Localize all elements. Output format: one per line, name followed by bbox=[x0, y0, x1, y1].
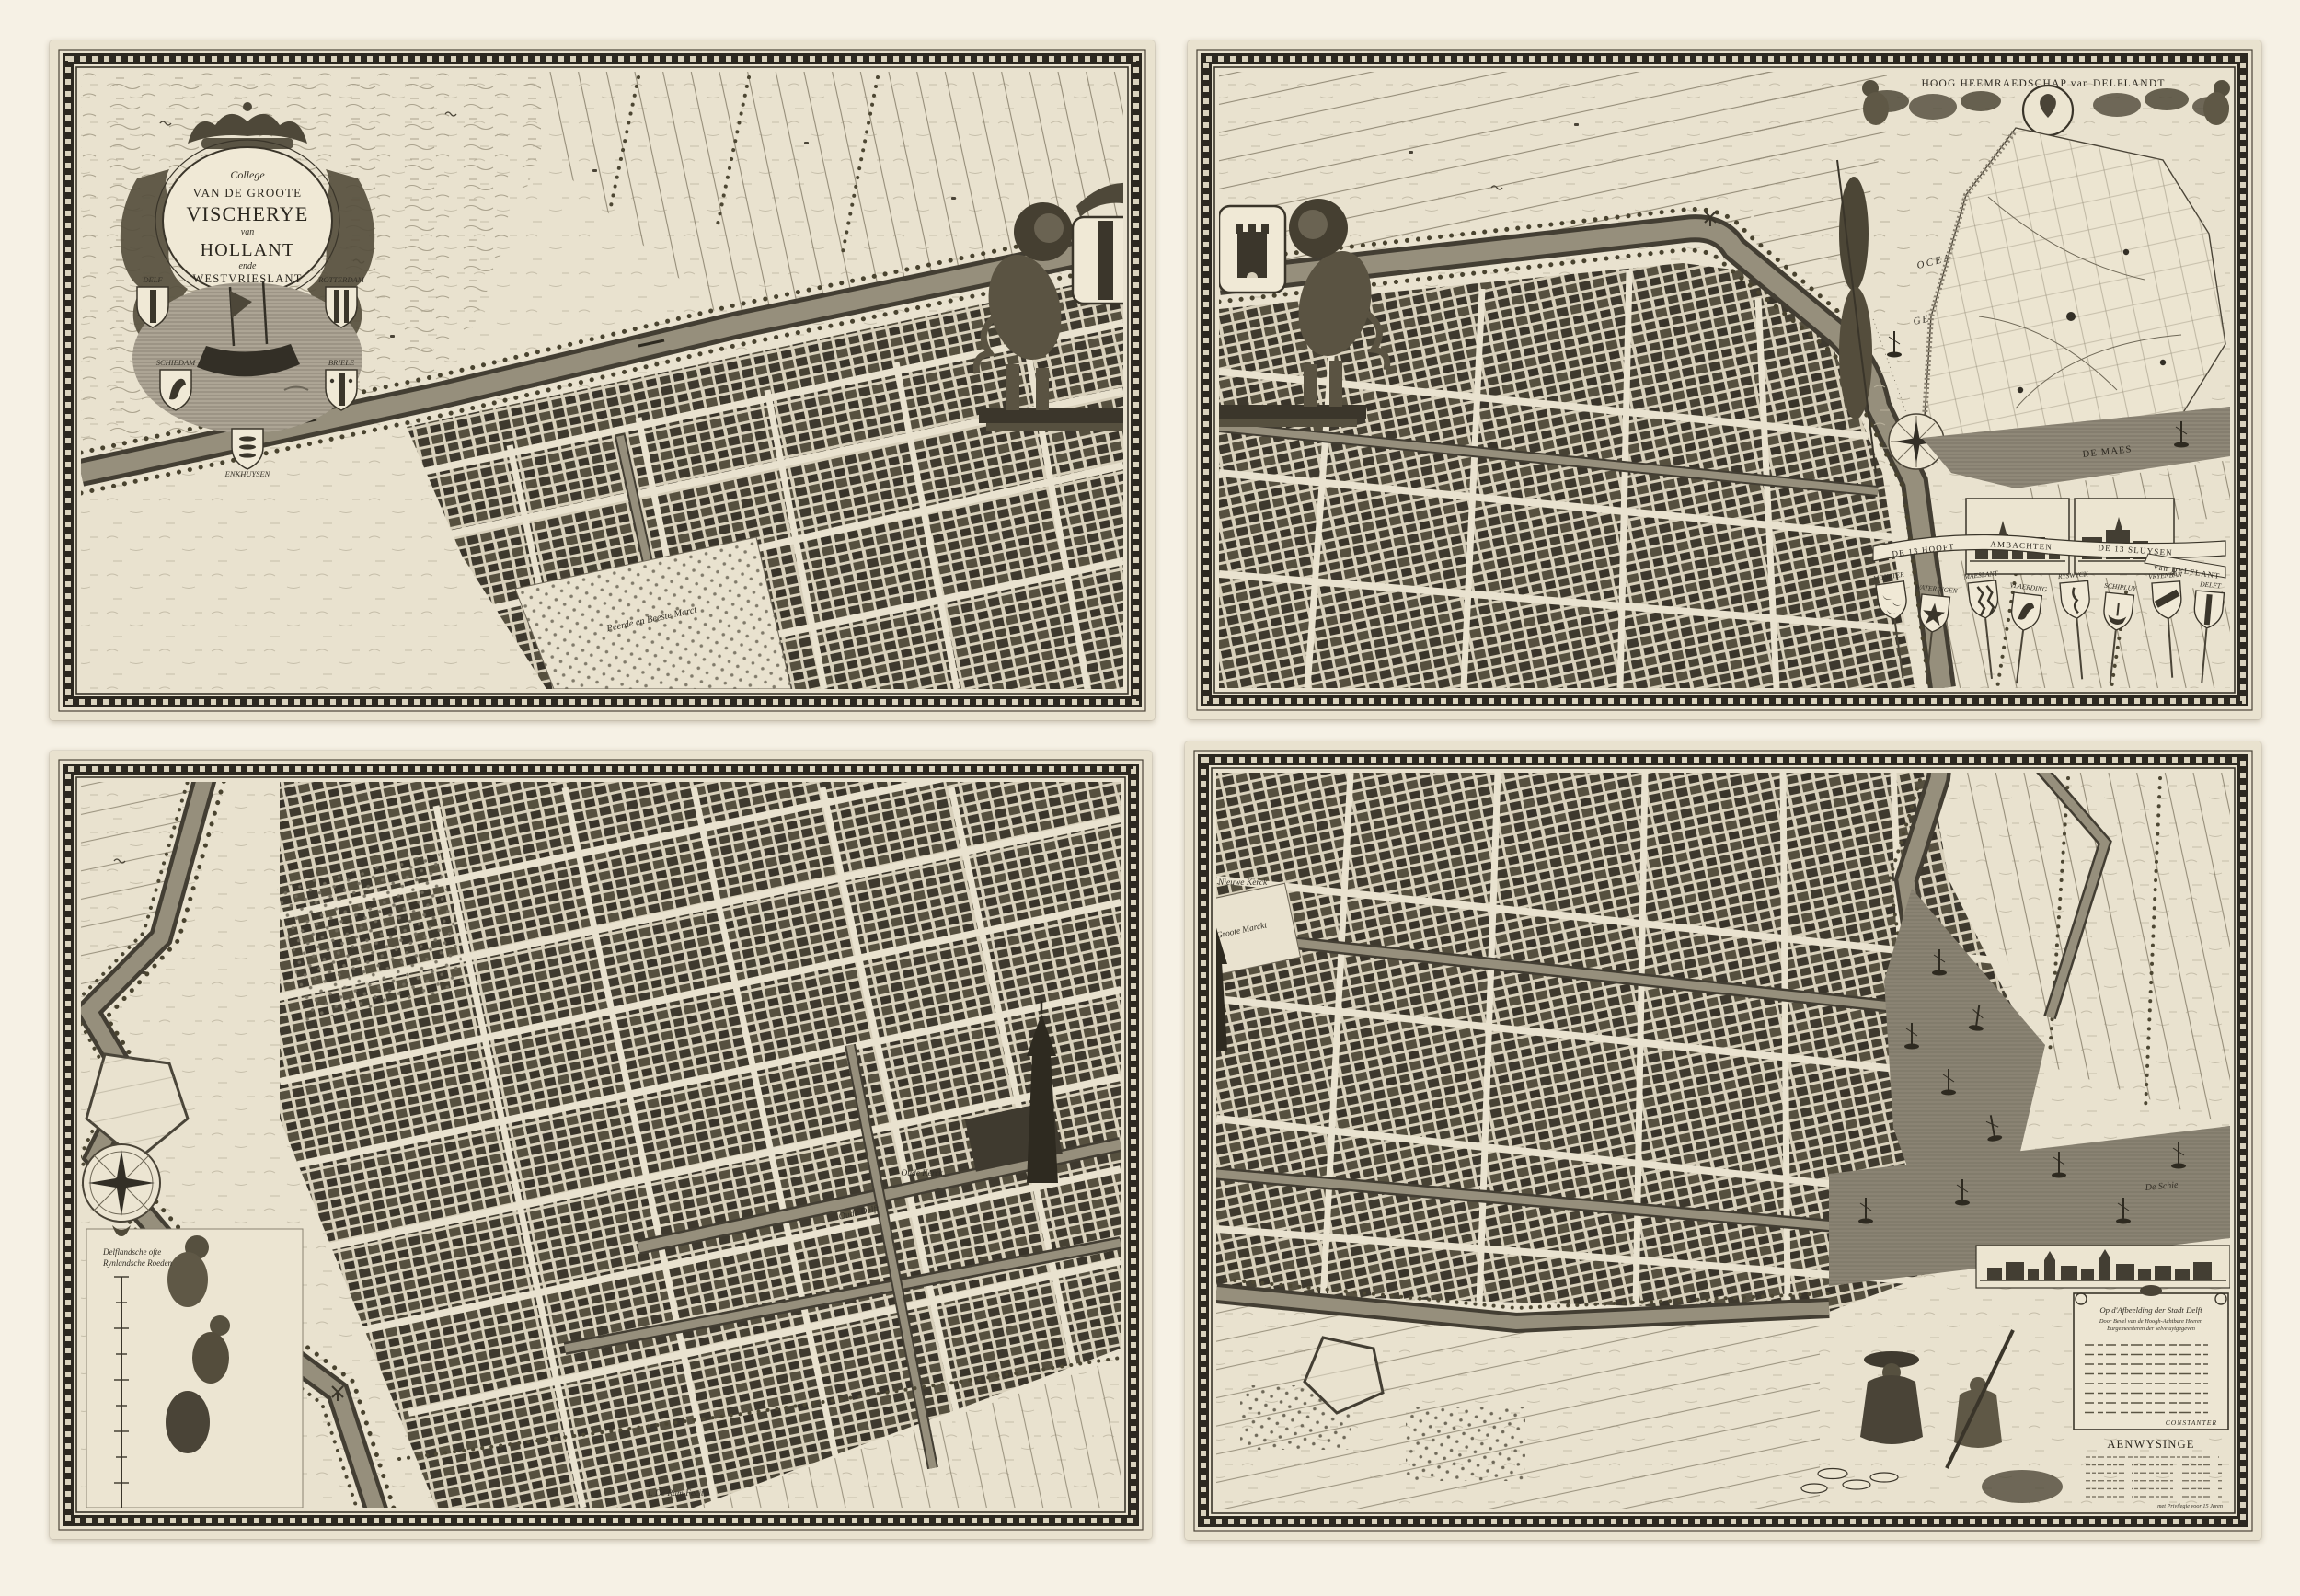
church-label: Oude Kerck bbox=[901, 1169, 943, 1178]
shield-label: SCHIEDAM bbox=[156, 358, 196, 367]
legend-column bbox=[2132, 1464, 2173, 1503]
map-sheet-bottom-right: Nieuwe Kerck Groote Marckt De Schie bbox=[1185, 741, 2261, 1540]
polder-south bbox=[1216, 1279, 1829, 1509]
poem-subtitle: Burgemeesteren der selve uytgegeven bbox=[2107, 1326, 2195, 1332]
scale-label: Delflandsche ofte bbox=[102, 1247, 161, 1257]
scanned-map-page: { "palette": { "page_bg": "#f6f1e5", "sh… bbox=[0, 0, 2300, 1596]
shield-label: ENKHUYSEN bbox=[224, 469, 271, 478]
castle-arms-shield bbox=[1219, 206, 1285, 293]
sheet3-map-area: Oude Delft Oude Kerck bbox=[72, 751, 1121, 1531]
privilege-note: met Privilegie voor 15 Jaren bbox=[2157, 1503, 2223, 1510]
poem-script-lines bbox=[2085, 1338, 2217, 1415]
cartouche-line: ende bbox=[239, 261, 257, 271]
shield-label: BRIELE bbox=[328, 358, 355, 367]
map-sheet-bottom-left: Oude Delft Oude Kerck bbox=[50, 751, 1152, 1539]
delft-arms-shield bbox=[1073, 217, 1139, 304]
shield-label: DELF bbox=[142, 275, 163, 284]
map-sheet-top-left: Peerde en Beeste Marct College VAN bbox=[50, 40, 1155, 720]
map-sheet-top-right: HOOG HEEMRAEDSCHAP van DELFLANDT bbox=[1188, 40, 2261, 719]
poem-title: Op d'Afbeelding der Stadt Delft bbox=[2099, 1305, 2202, 1315]
poem-signature: CONSTANTER bbox=[2166, 1418, 2217, 1427]
town-profile-vignette bbox=[1976, 1246, 2230, 1288]
legend-subtext-lines bbox=[2083, 1452, 2219, 1460]
scale-label: Rynlandsche Roeden bbox=[102, 1258, 173, 1268]
cartouche-line: HOLLANT bbox=[201, 240, 295, 260]
legend-column bbox=[2083, 1464, 2124, 1503]
stork-finial bbox=[2140, 1285, 2162, 1296]
cartouche-line: College bbox=[230, 168, 265, 181]
sheet1-map-area: Peerde en Beeste Marct College VAN bbox=[81, 72, 1144, 689]
poem-subtitle: Door Bevel van de Hoogh-Achtbare Heeren bbox=[2099, 1318, 2202, 1325]
engraver-signature: I. De Ram Fecit bbox=[647, 1489, 704, 1498]
sheet4-map-area: Nieuwe Kerck Groote Marckt De Schie bbox=[1186, 741, 2230, 1510]
cartouche-line: VAN DE GROOTE bbox=[193, 186, 303, 200]
poem-cartouche: Op d'Afbeelding der Stadt Delft Door Bev… bbox=[2074, 1285, 2228, 1430]
legend-title: AENWYSINGE bbox=[2107, 1438, 2194, 1451]
shield-label: ROTTERDAM bbox=[317, 275, 365, 284]
church-label: Nieuwe Kerck bbox=[1217, 878, 1268, 888]
cartouche-line: van bbox=[241, 227, 254, 237]
cartouche-line: VISCHERYE bbox=[186, 202, 308, 225]
sheet2-map-area: HOOG HEEMRAEDSCHAP van DELFLANDT bbox=[1219, 72, 2230, 688]
legend-column bbox=[2180, 1464, 2222, 1503]
